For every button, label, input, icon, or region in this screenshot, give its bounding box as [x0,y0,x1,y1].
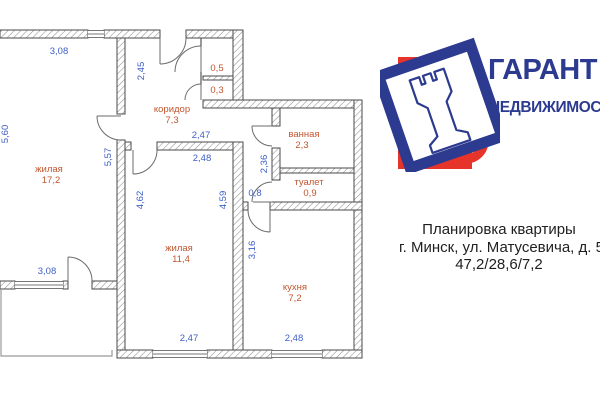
wall-segment [233,142,243,350]
wall-segment [203,100,362,108]
dimension: 4,59 [218,191,229,210]
wall-segment [270,202,362,210]
dimension: 3,08 [38,266,57,277]
middle-room-door [133,150,157,174]
agency-logo-mark [380,30,500,172]
room-area: 0,5 [210,63,223,74]
caption-address: г. Минск, ул. Матусевича, д. 5 [399,239,599,257]
dimension: 2,47 [180,333,199,344]
dimension: 2,48 [193,153,212,164]
window [153,350,207,358]
wall-segment [117,140,125,358]
room-area: 0,9 [303,188,316,199]
room-area: 7,3 [165,115,178,126]
window [15,281,63,289]
logo-tagline: НЕДВИЖИМОСТЬ [489,99,600,117]
wall-segment [117,38,125,114]
wall-segment [125,142,131,150]
room-area: 7,2 [288,293,301,304]
wall-segment [280,168,354,173]
wall-segment [233,30,243,108]
dimension: 2,47 [192,130,211,141]
caption-title: Планировка квартиры [399,221,599,239]
caption-areas: 47,2/28,6/7,2 [399,256,599,274]
logo-name: ГАРАНТ [488,54,597,87]
room-area: 11,4 [172,254,190,265]
screenshot-root: жилая 17,2 коридор 7,3 ванная 2,3 туалет… [0,0,600,400]
wall-segment [104,30,160,38]
wall-segment [354,100,362,358]
dimension: 5,60 [0,125,11,144]
room-area: 17,2 [42,175,61,186]
dimension-labels: 3,08 5,60 2,45 5,57 2,47 2,48 4,62 4,59 … [0,46,303,344]
windows [15,30,322,358]
wall-segment [0,281,15,289]
dimension: 2,45 [136,62,147,81]
floor-plan: жилая 17,2 коридор 7,3 ванная 2,3 туалет… [0,0,380,400]
room-label: туалет [294,177,324,188]
entrance-door [160,38,186,64]
living-room-door [97,116,121,140]
closet-door [175,46,201,72]
dimension: 2,36 [259,155,270,174]
wall-segment [92,281,117,289]
room-label: жилая [35,164,63,175]
wall-segment [322,350,362,358]
dimension: 4,62 [135,191,146,210]
kitchen-door [248,210,270,232]
wall-segment [272,148,280,180]
dimension: 3,08 [50,46,69,57]
wall-segment [63,281,68,289]
closet-door [185,84,201,100]
dimension: 0,8 [248,188,261,199]
room-label: ванная [288,129,319,140]
wall-segment [207,350,272,358]
balcony-outline [1,289,112,356]
wall-segment [157,142,233,150]
room-area: 0,3 [210,85,223,96]
balcony-door [68,257,92,281]
window [272,350,322,358]
wall-segment [243,202,248,210]
wall-segment [272,108,280,126]
wall-segment [0,30,88,38]
closet-partition [203,76,233,80]
room-label: коридор [154,104,190,115]
caption: Планировка квартиры г. Минск, ул. Матусе… [399,221,599,274]
room-area: 2,3 [295,140,308,151]
room-label: жилая [165,243,193,254]
bathroom-door [252,126,272,146]
window [88,30,104,38]
dimension: 5,57 [103,148,114,167]
wall-segment [117,350,153,358]
room-labels: жилая 17,2 коридор 7,3 ванная 2,3 туалет… [35,63,324,304]
dimension: 2,48 [285,333,304,344]
room-label: кухня [283,282,307,293]
dimension: 3,16 [247,241,258,260]
